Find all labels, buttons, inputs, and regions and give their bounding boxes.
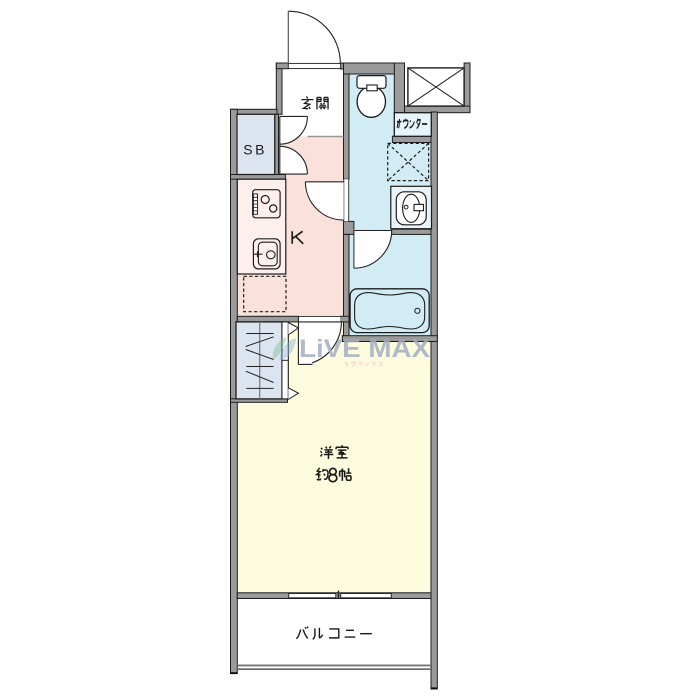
svg-text:SB: SB — [243, 142, 267, 158]
svg-text:LiVE MAX: LiVE MAX — [299, 335, 430, 363]
